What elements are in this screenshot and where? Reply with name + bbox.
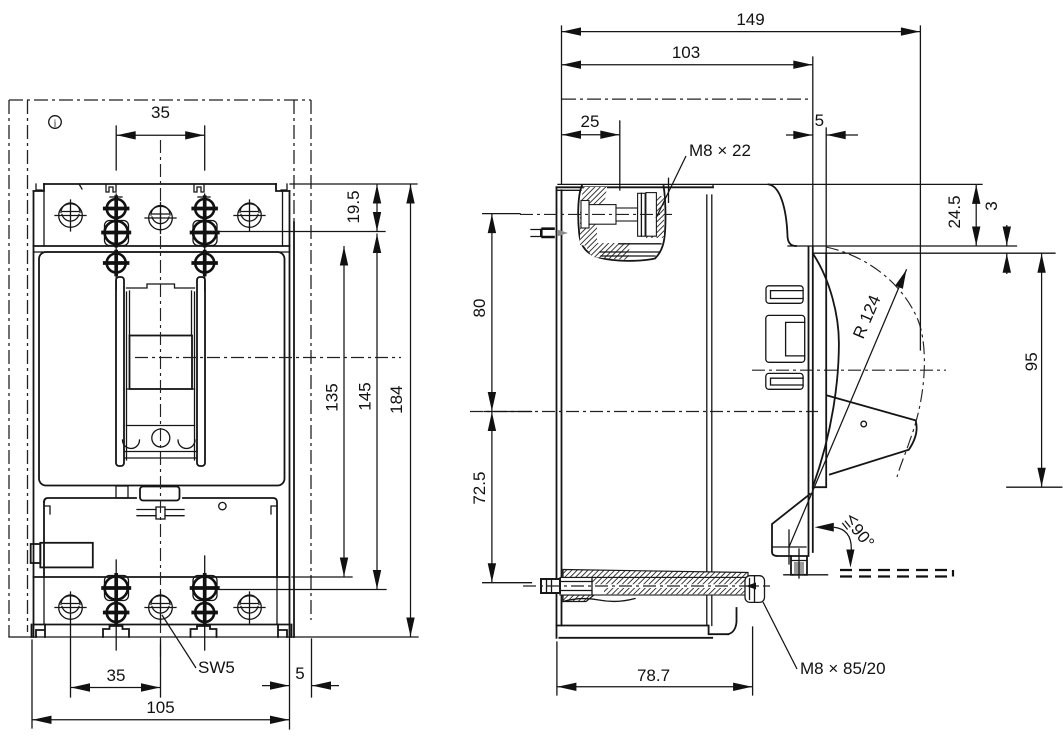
svg-text:135: 135 — [323, 383, 342, 411]
svg-text:105: 105 — [146, 698, 174, 717]
svg-text:78.7: 78.7 — [637, 666, 670, 685]
svg-text:80: 80 — [470, 299, 489, 318]
svg-text:SW5: SW5 — [198, 658, 235, 677]
svg-text:72.5: 72.5 — [470, 472, 489, 505]
svg-text:145: 145 — [355, 382, 374, 410]
svg-text:24.5: 24.5 — [945, 195, 964, 228]
svg-text:184: 184 — [387, 386, 406, 414]
svg-text:5: 5 — [295, 664, 304, 683]
svg-text:19.5: 19.5 — [344, 190, 363, 223]
svg-text:103: 103 — [672, 43, 700, 62]
svg-text:5: 5 — [815, 111, 824, 130]
svg-text:3: 3 — [982, 201, 1001, 210]
svg-text:149: 149 — [736, 10, 764, 29]
svg-text:i: i — [54, 119, 57, 130]
svg-text:25: 25 — [581, 112, 600, 131]
svg-text:35: 35 — [151, 103, 170, 122]
svg-text:95: 95 — [1022, 352, 1041, 371]
svg-text:M8 × 85/20: M8 × 85/20 — [800, 659, 886, 678]
svg-text:35: 35 — [107, 666, 126, 685]
svg-text:M8 × 22: M8 × 22 — [689, 141, 751, 160]
